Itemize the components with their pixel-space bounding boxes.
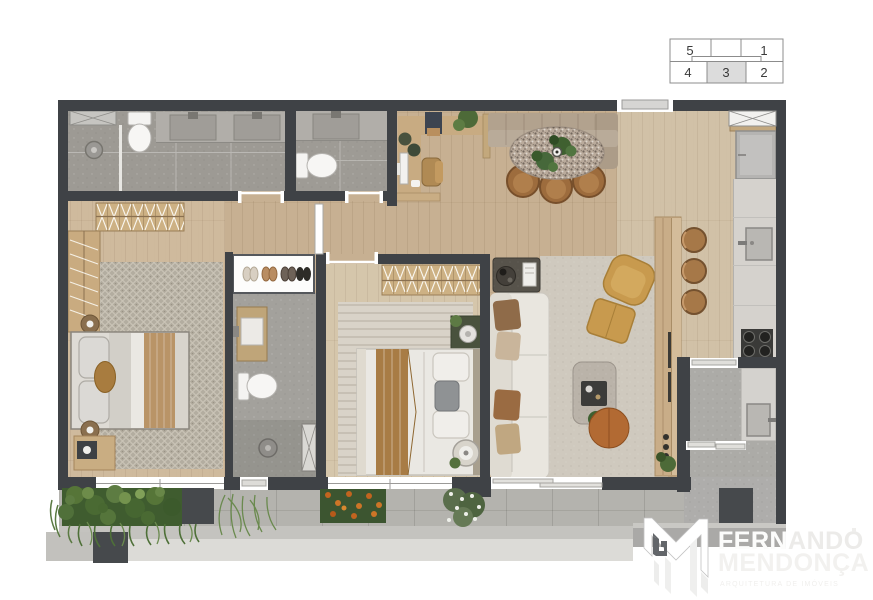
svg-text:1: 1 [760, 43, 767, 58]
svg-text:3: 3 [722, 65, 729, 80]
svg-text:4: 4 [684, 65, 691, 80]
svg-text:5: 5 [686, 43, 693, 58]
svg-text:ARQUITETURA DE IMÓVEIS: ARQUITETURA DE IMÓVEIS [720, 579, 839, 588]
svg-text:FERN: FERN [718, 527, 788, 555]
svg-text:2: 2 [760, 65, 767, 80]
